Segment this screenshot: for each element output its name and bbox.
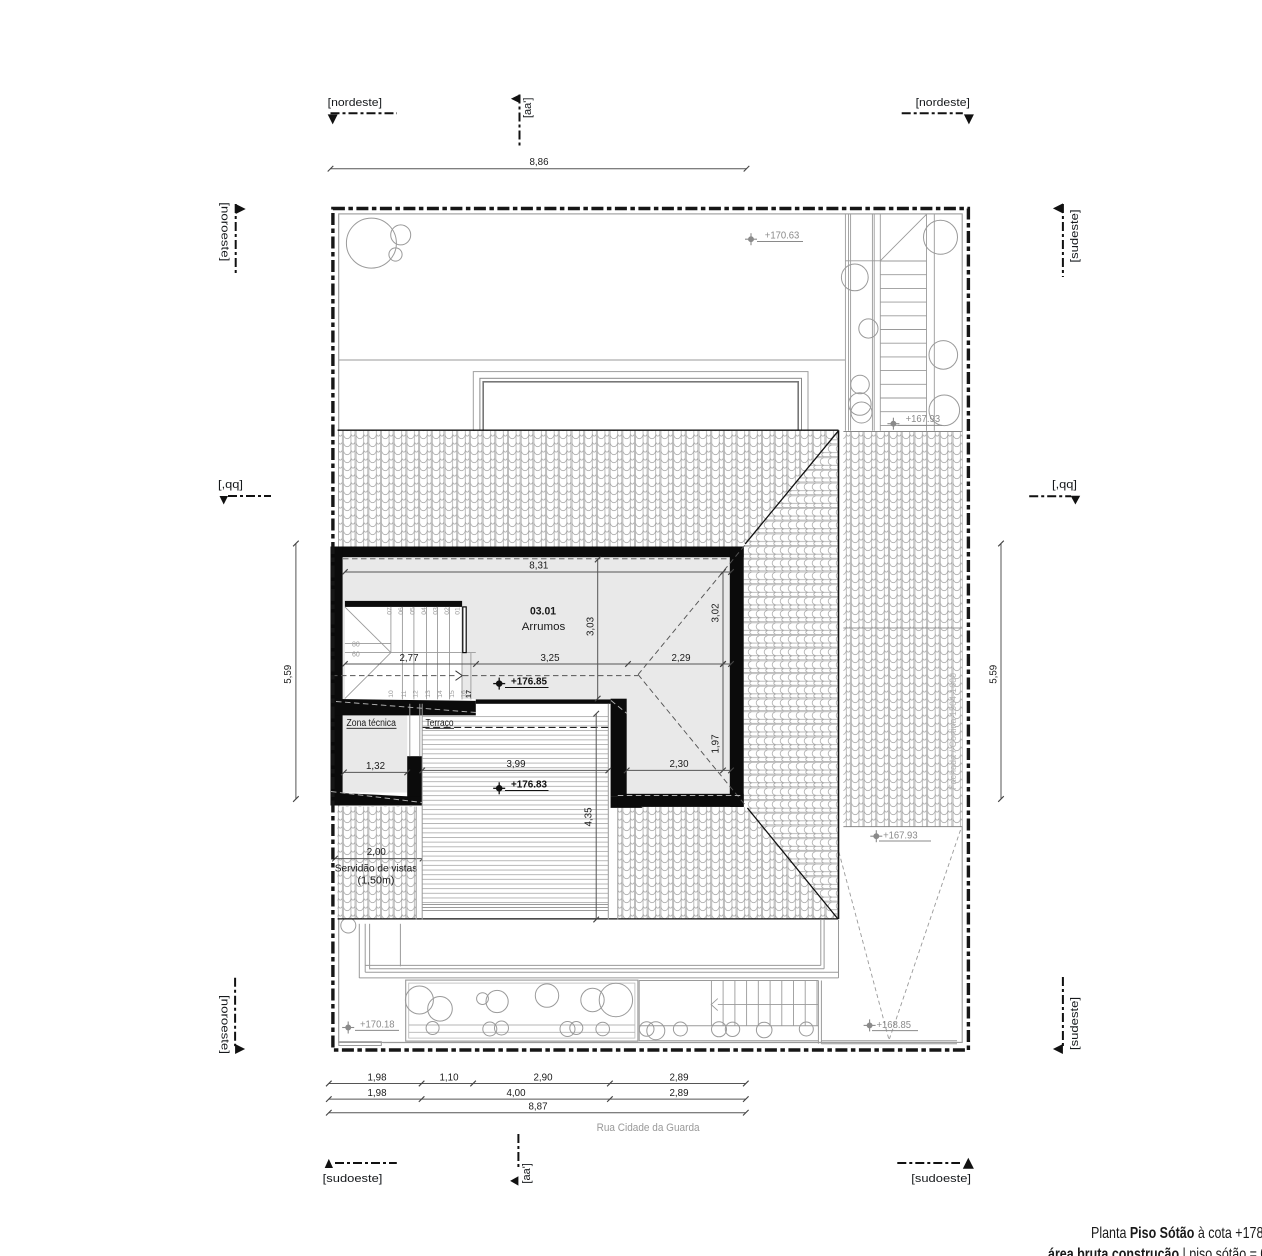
svg-text:2,29: 2,29 [672, 652, 691, 664]
svg-text:Servidão de vistas: Servidão de vistas [335, 864, 418, 875]
svg-text:3,02: 3,02 [710, 603, 722, 622]
svg-text:3,25: 3,25 [541, 652, 560, 664]
svg-text:[noroeste]: [noroeste] [219, 202, 231, 261]
svg-text:14: 14 [437, 690, 444, 698]
svg-text:+170.18: +170.18 [360, 1019, 395, 1031]
svg-text:2,90: 2,90 [534, 1072, 553, 1084]
svg-text:01: 01 [455, 607, 462, 615]
svg-text:[sudeste]: [sudeste] [1069, 210, 1081, 263]
svg-text:3,03: 3,03 [585, 617, 597, 636]
svg-text:07: 07 [387, 607, 394, 615]
svg-text:10: 10 [388, 690, 395, 698]
svg-text:Fachada / Cortina 1504-1600: Fachada / Cortina 1504-1600 [948, 673, 958, 790]
svg-text:[,qq]: [,qq] [1052, 479, 1077, 491]
svg-text:13: 13 [425, 690, 432, 698]
svg-text:Arrumos: Arrumos [522, 621, 566, 633]
svg-text:1,98: 1,98 [368, 1072, 387, 1084]
svg-text:4,35: 4,35 [583, 807, 595, 826]
svg-text:8,86: 8,86 [530, 156, 549, 168]
svg-text:[nordeste]: [nordeste] [916, 97, 970, 109]
svg-text:80: 80 [352, 642, 360, 649]
svg-text:06: 06 [398, 607, 405, 615]
svg-text:1,10: 1,10 [440, 1072, 459, 1084]
svg-text:2,89: 2,89 [670, 1072, 689, 1084]
svg-text:+170.63: +170.63 [765, 230, 800, 242]
svg-text:2,00: 2,00 [367, 846, 386, 858]
svg-text:8,87: 8,87 [529, 1101, 548, 1113]
svg-text:[noroeste]: [noroeste] [219, 995, 231, 1054]
svg-text:2,30: 2,30 [670, 758, 689, 770]
svg-text:11: 11 [401, 690, 408, 697]
svg-text:1,98: 1,98 [368, 1087, 387, 1099]
svg-text:[sudoeste]: [sudoeste] [911, 1173, 971, 1185]
svg-text:+176.85: +176.85 [511, 676, 547, 688]
svg-text:8,31: 8,31 [529, 560, 548, 572]
svg-text:4,00: 4,00 [507, 1087, 526, 1099]
svg-text:2,89: 2,89 [670, 1087, 689, 1099]
svg-text:[,qq]: [,qq] [218, 479, 243, 491]
svg-text:17: 17 [464, 690, 473, 698]
svg-text:Rua Cidade da Guarda: Rua Cidade da Guarda [597, 1122, 701, 1134]
svg-text:[aa']: [aa'] [522, 98, 534, 118]
svg-text:5,59: 5,59 [282, 665, 294, 684]
svg-text:[sudeste]: [sudeste] [1069, 997, 1081, 1050]
svg-text:2,77: 2,77 [400, 652, 419, 664]
svg-text:3,99: 3,99 [507, 758, 526, 770]
svg-text:60: 60 [352, 652, 360, 659]
svg-text:+176.83: +176.83 [511, 779, 547, 791]
svg-text:(1,50m): (1,50m) [358, 876, 395, 887]
svg-text:03: 03 [433, 607, 440, 615]
svg-text:05: 05 [410, 607, 417, 615]
svg-text:03.01: 03.01 [530, 606, 556, 618]
svg-text:+168.85: +168.85 [877, 1019, 912, 1031]
svg-text:02: 02 [444, 607, 451, 615]
svg-text:[sudoeste]: [sudoeste] [323, 1173, 383, 1185]
svg-text:+167.93: +167.93 [906, 413, 941, 425]
svg-text:Zona técnica: Zona técnica [347, 718, 397, 729]
svg-text:5,59: 5,59 [988, 665, 1000, 684]
svg-text:Terraço: Terraço [426, 718, 454, 729]
svg-text:+167.93: +167.93 [883, 830, 918, 842]
svg-text:1,97: 1,97 [710, 734, 722, 753]
svg-text:04: 04 [421, 607, 428, 615]
svg-text:[nordeste]: [nordeste] [328, 97, 382, 109]
svg-text:[aa']: [aa'] [521, 1163, 533, 1183]
svg-text:12: 12 [413, 690, 420, 698]
svg-text:15: 15 [449, 690, 456, 698]
svg-text:1,32: 1,32 [366, 760, 385, 772]
